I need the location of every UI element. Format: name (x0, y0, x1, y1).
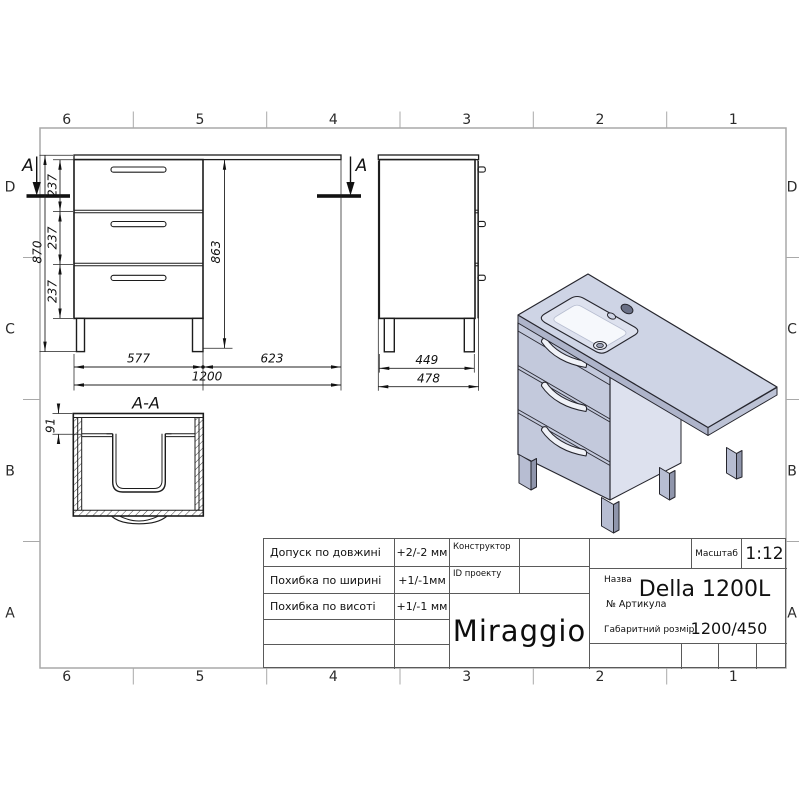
section-letter: A (21, 156, 34, 176)
title-block: Допуск по довжині +2/-2 мм Похибка по ши… (263, 538, 786, 668)
tolerance-width-value: +1/-1мм (395, 567, 449, 593)
dim-1200: 1200 (192, 369, 223, 383)
dim-449: 449 (415, 353, 438, 367)
grid-row-label: A (5, 606, 15, 622)
grid-col-label: 3 (462, 669, 471, 685)
article-label: № Артикула (606, 599, 666, 610)
grid-col-label: 2 (596, 112, 605, 128)
drawing-sheet: 6 5 4 3 2 1 6 5 4 3 2 1 D C B A D C B A (0, 0, 800, 800)
grid-col-label: 4 (329, 112, 338, 128)
grid-col-label: 4 (329, 669, 338, 685)
section-view: A-A (44, 394, 204, 524)
dim-863: 863 (209, 241, 223, 264)
dim-870: 870 (31, 240, 45, 263)
grid-col-label: 5 (196, 112, 205, 128)
grid-row-label: D (5, 180, 16, 196)
dim-478: 478 (417, 371, 440, 385)
drawer-handles-side (478, 167, 485, 281)
grid-row-label: B (787, 464, 797, 480)
grid-row-label: C (5, 322, 15, 338)
dim-237-top: 237 (46, 174, 60, 197)
legs-side (384, 318, 474, 351)
dim-237-bot: 237 (46, 280, 60, 303)
drawing-canvas: 6 5 4 3 2 1 6 5 4 3 2 1 D C B A D C B A (0, 0, 800, 800)
section-title: A-A (131, 394, 160, 413)
grid-col-label: 5 (196, 669, 205, 685)
overall-size-value: 1200/450 (689, 617, 769, 639)
tolerance-height-value: +1/-1 мм (395, 594, 449, 619)
dim-237-mid: 237 (46, 226, 60, 249)
grid-row-label: A (787, 606, 797, 622)
grid-row-label: B (5, 464, 15, 480)
scale-value: 1:12 (742, 539, 787, 568)
grid-col-label: 6 (62, 669, 71, 685)
overall-size-label: Габаритний розмір (604, 625, 694, 635)
dim-91: 91 (44, 418, 58, 433)
constructor-label: Конструктор (453, 542, 511, 552)
project-id-label: ID проекту (453, 569, 501, 579)
tolerance-height-label: Похибка по висоті (264, 594, 398, 619)
dim-577: 577 (127, 351, 150, 365)
tolerance-width-label: Похибка по ширині (264, 567, 398, 593)
isometric-view (518, 274, 777, 533)
brand-logo: Miraggio (450, 594, 589, 668)
legs-front (77, 318, 204, 351)
grid-row-label: C (787, 322, 797, 338)
side-view: 449 478 (378, 155, 485, 391)
section-letter: A (355, 156, 368, 176)
tolerance-length-value: +2/-2 мм (395, 539, 449, 566)
dim-623: 623 (261, 351, 284, 365)
grid-col-label: 6 (62, 112, 71, 128)
grid-col-label: 1 (729, 669, 738, 685)
scale-label: Масштаб (692, 539, 741, 568)
grid-col-label: 2 (596, 669, 605, 685)
grid-row-label: D (787, 180, 798, 196)
section-marker-right: A (317, 156, 367, 198)
tolerance-length-label: Допуск по довжині (264, 539, 398, 566)
front-view: A A (21, 155, 367, 391)
grid-col-label: 1 (729, 112, 738, 128)
grid-col-label: 3 (462, 112, 471, 128)
